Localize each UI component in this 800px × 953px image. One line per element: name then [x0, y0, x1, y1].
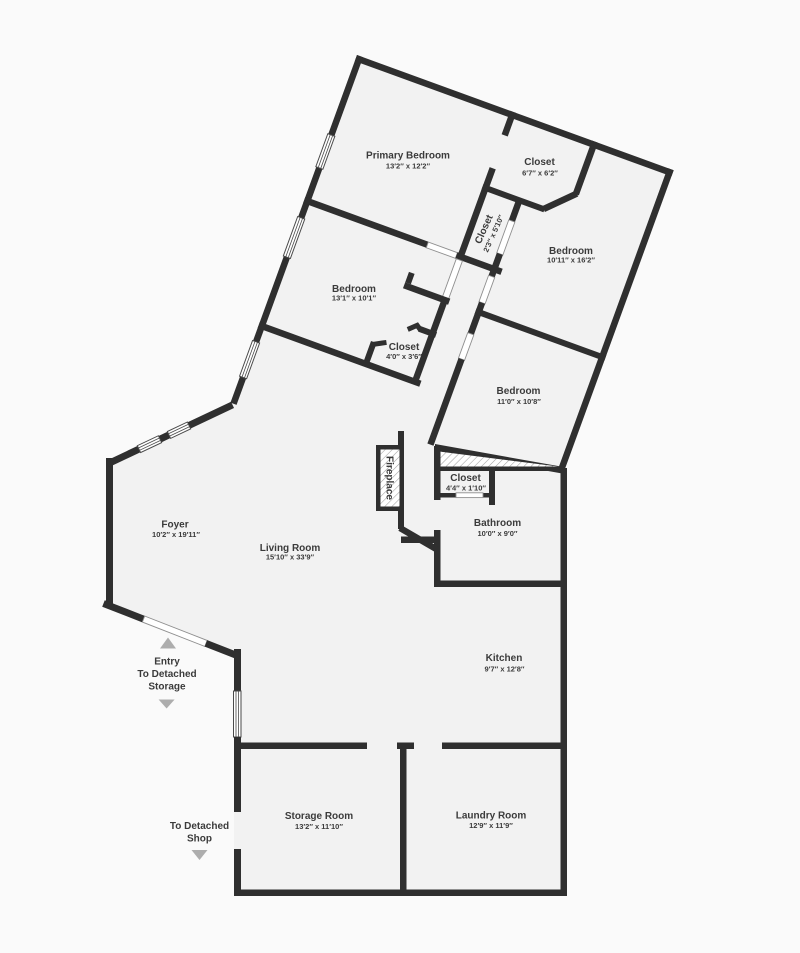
svg-text:Bathroom: Bathroom: [474, 518, 521, 529]
svg-text:4′0″ x 3′6″: 4′0″ x 3′6″: [386, 352, 422, 361]
svg-text:To Detached: To Detached: [170, 821, 229, 832]
svg-text:Closet: Closet: [524, 157, 555, 168]
svg-text:Fireplace: Fireplace: [384, 456, 395, 500]
svg-text:9′7″ x 12′8″: 9′7″ x 12′8″: [485, 665, 525, 674]
svg-text:To Detached: To Detached: [137, 669, 196, 680]
svg-text:Shop: Shop: [187, 834, 212, 845]
svg-text:13′2″ x 11′10″: 13′2″ x 11′10″: [295, 822, 343, 831]
svg-text:10′2″ x 19′11″: 10′2″ x 19′11″: [152, 530, 200, 539]
svg-text:4′4″ x 1′10″: 4′4″ x 1′10″: [446, 484, 486, 493]
svg-text:12′9″ x 11′9″: 12′9″ x 11′9″: [469, 821, 513, 830]
svg-text:6′7″ x 6′2″: 6′7″ x 6′2″: [522, 169, 558, 178]
svg-text:11′0″ x 10′8″: 11′0″ x 10′8″: [497, 397, 541, 406]
svg-text:Storage Room: Storage Room: [285, 811, 353, 822]
svg-text:Entry: Entry: [154, 657, 180, 668]
svg-text:Storage: Storage: [148, 682, 186, 693]
svg-text:10′0″ x 9′0″: 10′0″ x 9′0″: [478, 529, 518, 538]
svg-text:15′10″ x 33′9″: 15′10″ x 33′9″: [266, 553, 315, 562]
svg-text:Bedroom: Bedroom: [497, 386, 541, 397]
svg-text:10′11″ x 16′2″: 10′11″ x 16′2″: [547, 256, 595, 265]
svg-text:Primary Bedroom: Primary Bedroom: [366, 151, 450, 162]
svg-text:Kitchen: Kitchen: [486, 653, 523, 664]
svg-text:Closet: Closet: [450, 473, 481, 484]
svg-text:Foyer: Foyer: [161, 520, 188, 531]
svg-text:13′2″ x 12′2″: 13′2″ x 12′2″: [386, 162, 431, 171]
svg-text:13′1″ x 10′1″: 13′1″ x 10′1″: [332, 294, 377, 303]
svg-text:Laundry Room: Laundry Room: [456, 811, 527, 822]
